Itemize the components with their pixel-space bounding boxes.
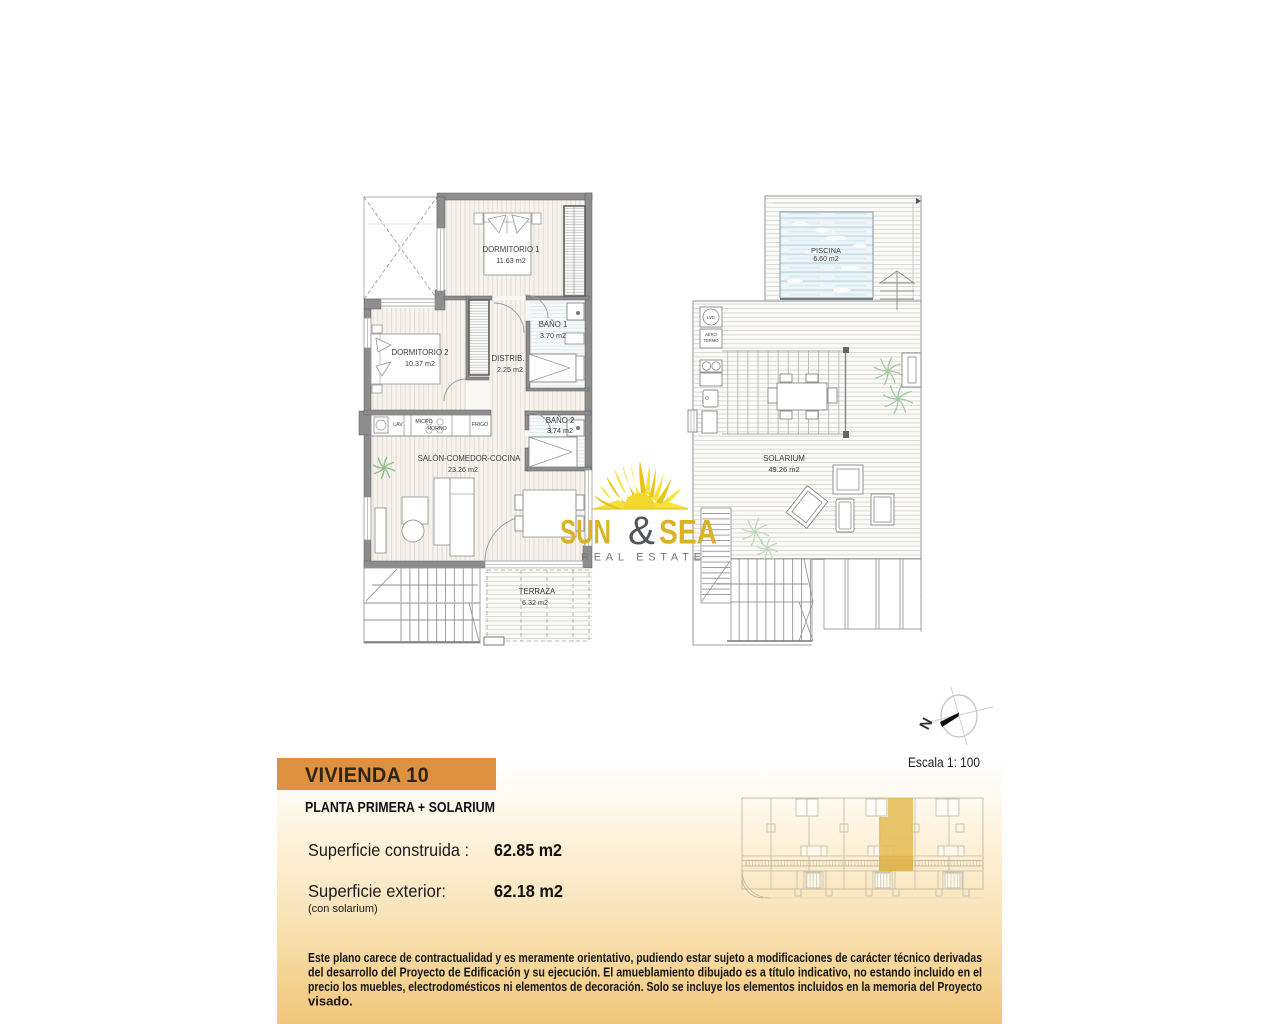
svg-text:VIVIENDA 10: VIVIENDA 10 bbox=[305, 763, 429, 787]
svg-text:BAÑO 2: BAÑO 2 bbox=[546, 416, 575, 425]
svg-text:precio los muebles, electrodom: precio los muebles, electrodomésticos ni… bbox=[308, 979, 982, 994]
svg-text:PISCINA: PISCINA bbox=[811, 246, 841, 255]
svg-text:62.18 m2: 62.18 m2 bbox=[494, 881, 563, 901]
svg-text:DORMITORIO 2: DORMITORIO 2 bbox=[391, 348, 448, 357]
svg-text:SOLARIUM: SOLARIUM bbox=[763, 454, 805, 463]
svg-text:49.26 m2: 49.26 m2 bbox=[768, 465, 799, 474]
svg-text:REAL ESTATE: REAL ESTATE bbox=[581, 552, 701, 564]
svg-text:PLANTA PRIMERA + SOLARIUM: PLANTA PRIMERA + SOLARIUM bbox=[305, 800, 495, 816]
svg-text:DORMITORIO 1: DORMITORIO 1 bbox=[482, 245, 539, 254]
svg-text:6.60 m2: 6.60 m2 bbox=[813, 256, 838, 263]
svg-text:Superficie construida :: Superficie construida : bbox=[308, 840, 469, 860]
svg-text:HORNO: HORNO bbox=[427, 426, 446, 432]
svg-text:10.37 m2: 10.37 m2 bbox=[405, 359, 435, 368]
svg-text:DISTRIB.: DISTRIB. bbox=[492, 354, 525, 363]
svg-text:LAV: LAV bbox=[393, 422, 403, 428]
svg-text:SALÓN-COMEDOR-COCINA: SALÓN-COMEDOR-COCINA bbox=[418, 454, 521, 463]
svg-text:AERO: AERO bbox=[705, 332, 718, 337]
svg-text:Este plano carece de contractu: Este plano carece de contractualidad y e… bbox=[308, 950, 982, 965]
svg-text:23.26 m2: 23.26 m2 bbox=[448, 465, 478, 474]
svg-text:2.25 m2: 2.25 m2 bbox=[497, 365, 523, 374]
svg-text:FRIGO: FRIGO bbox=[472, 422, 488, 428]
svg-text:3.70 m2: 3.70 m2 bbox=[540, 331, 566, 340]
svg-text:MICRO: MICRO bbox=[415, 419, 432, 425]
svg-text:Escala 1: 100: Escala 1: 100 bbox=[908, 754, 980, 770]
svg-text:SUN: SUN bbox=[560, 514, 611, 552]
svg-text:TERMO: TERMO bbox=[703, 338, 719, 343]
svg-text:(con solarium): (con solarium) bbox=[308, 903, 378, 915]
svg-text:6.32 m2: 6.32 m2 bbox=[522, 598, 548, 607]
svg-text:LVD: LVD bbox=[707, 315, 715, 320]
svg-text:N: N bbox=[916, 715, 936, 733]
svg-text:11.63 m2: 11.63 m2 bbox=[496, 256, 525, 265]
svg-text:visado.: visado. bbox=[308, 994, 353, 1009]
svg-text:&: & bbox=[628, 509, 655, 553]
svg-text:SEA: SEA bbox=[659, 514, 717, 552]
svg-text:62.85 m2: 62.85 m2 bbox=[494, 840, 562, 860]
svg-text:del desarrollo del Proyecto de: del desarrollo del Proyecto de Edificaci… bbox=[308, 965, 982, 980]
svg-text:BAÑO 1: BAÑO 1 bbox=[539, 320, 568, 329]
svg-text:Superficie exterior:: Superficie exterior: bbox=[308, 881, 446, 901]
svg-text:TERRAZA: TERRAZA bbox=[519, 587, 556, 596]
svg-text:3.74 m2: 3.74 m2 bbox=[547, 426, 573, 435]
